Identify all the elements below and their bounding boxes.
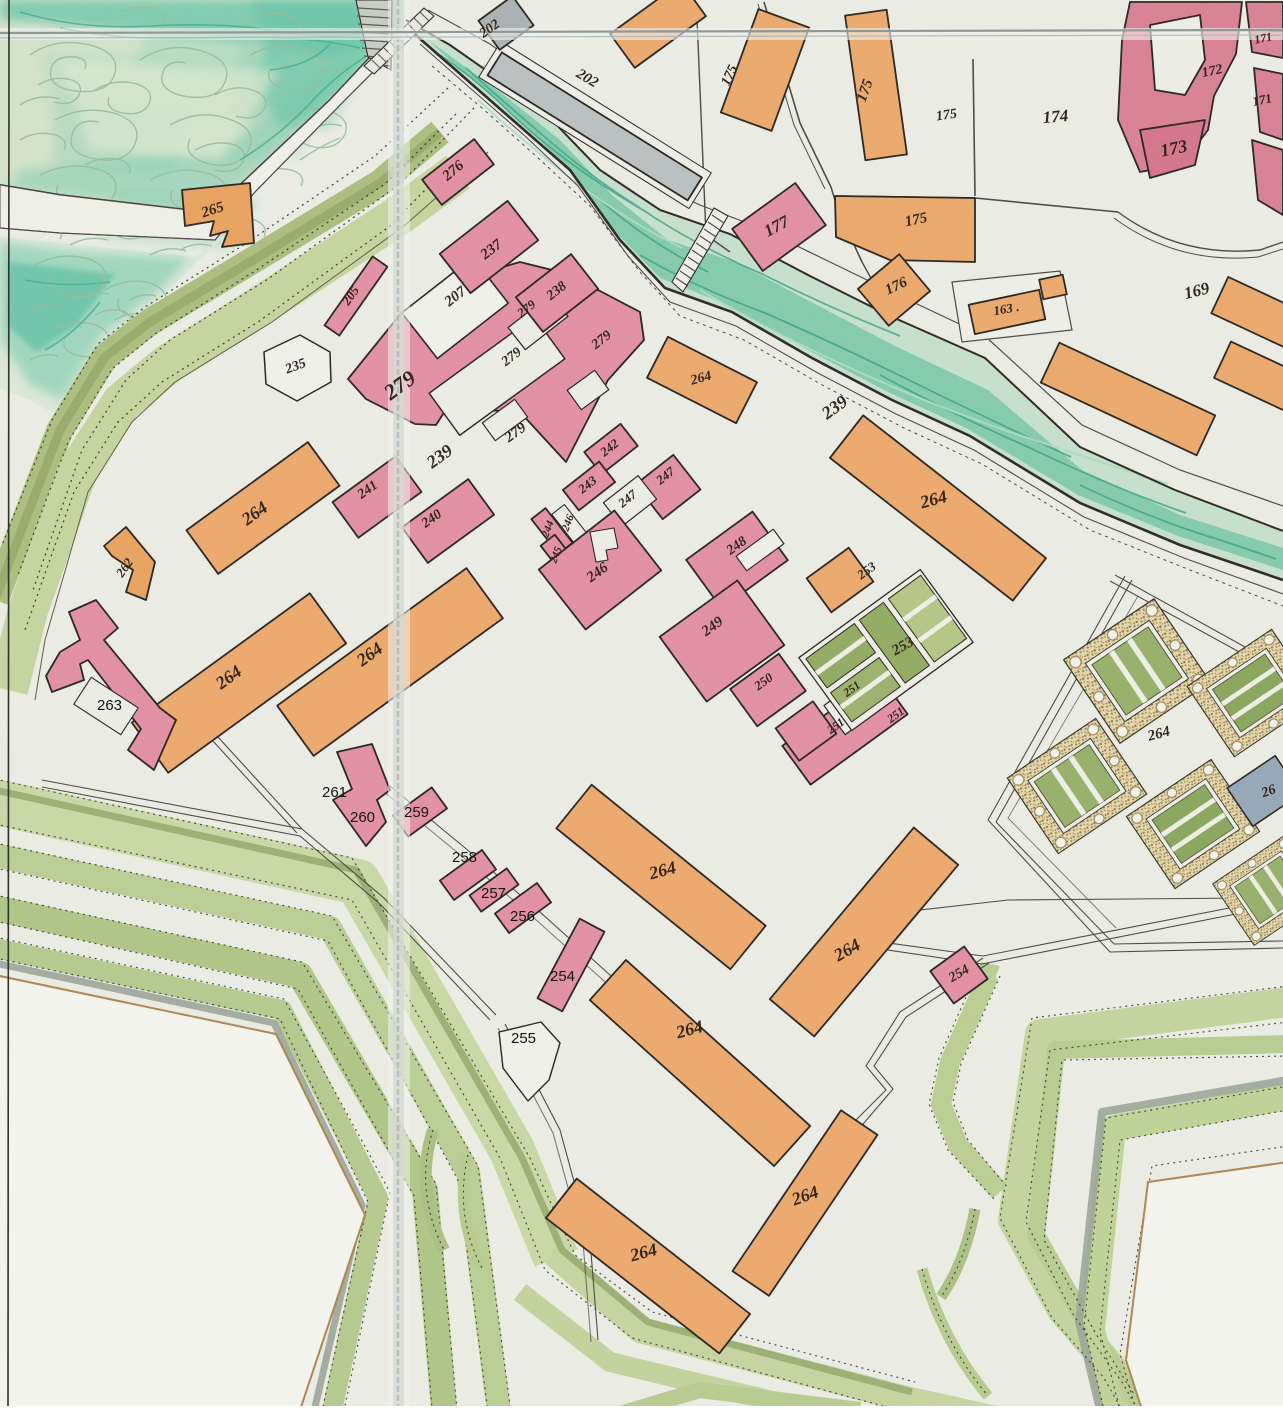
svg-text:261: 261 — [322, 784, 347, 801]
svg-text:255: 255 — [511, 1030, 536, 1047]
svg-text:175: 175 — [935, 107, 958, 125]
svg-text:263: 263 — [97, 697, 122, 714]
svg-text:254: 254 — [550, 968, 575, 985]
svg-text:259: 259 — [404, 804, 429, 821]
svg-text:256: 256 — [510, 908, 535, 925]
svg-text:174: 174 — [1042, 106, 1069, 127]
svg-text:260: 260 — [350, 809, 375, 826]
svg-text:258: 258 — [452, 849, 477, 866]
svg-text:257: 257 — [481, 885, 506, 902]
